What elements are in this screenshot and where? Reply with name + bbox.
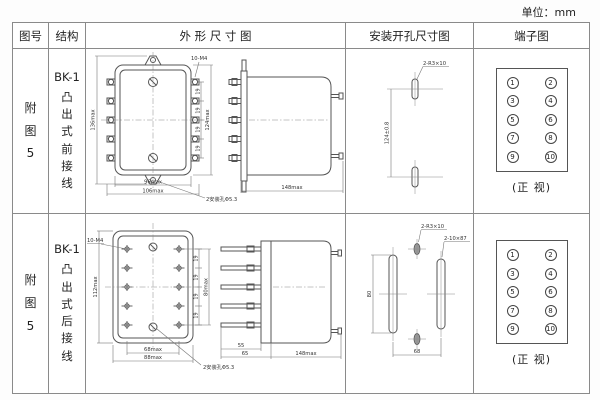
dim-depth: 148max [295, 351, 316, 357]
outline-drawing-front-wiring: 136max 10-M4 19 19 19 19 124max 96max 10… [87, 51, 345, 212]
header-terminal: 端子图 [474, 23, 589, 49]
dim-spacing: 124±0.8 [384, 121, 390, 144]
terminal-cell-row1: 1 2 3 4 5 6 7 8 9 10 (正 视) [474, 49, 589, 214]
terminal-number: 10 [545, 151, 557, 163]
unit-label: 单位：mm [522, 4, 576, 20]
terminal-box: 1 2 3 4 5 6 7 8 9 10 [496, 240, 568, 344]
terminal-cell-row2: 1 2 3 4 5 6 7 8 9 10 (正 视) [474, 214, 589, 393]
terminal-number: 5 [507, 114, 519, 126]
dim-pitch: 19 [193, 274, 199, 280]
fig-char: 5 [27, 142, 35, 165]
outline-cell-row1: 136max 10-M4 19 19 19 19 124max 96max 10… [86, 49, 346, 214]
dim-width-outer: 88max [144, 355, 162, 361]
fig-char: 图 [24, 120, 36, 143]
dim-pitch: 19 [193, 293, 199, 299]
slot-label: 2-R3×10 [421, 224, 444, 230]
structure-char: 前 [61, 141, 73, 158]
structure-char: 式 [61, 123, 73, 140]
terminal-number: 10 [545, 323, 557, 335]
dim-pitch: 19 [195, 126, 201, 132]
terminal-number: 6 [545, 286, 557, 298]
dim-depth: 148max [281, 185, 302, 191]
structure-char: 线 [61, 348, 73, 365]
structure-char: 式 [61, 296, 73, 313]
fig-char: 附 [24, 269, 36, 292]
terminal-caption: (正 视) [512, 351, 551, 367]
structure-char: 凸 [61, 261, 73, 278]
header-outline: 外 形 尺 寸 图 [86, 23, 346, 49]
terminal-number: 4 [545, 268, 557, 280]
terminal-number: 4 [545, 95, 557, 107]
terminal-number: 6 [545, 114, 557, 126]
mount-hole-label: 2安装孔Φ5.3 [203, 363, 234, 371]
structure-char: 接 [61, 158, 73, 175]
header-structure: 结构 [49, 23, 86, 49]
dim-pitch: 19 [195, 145, 201, 151]
outline-drawing-rear-wiring: 10-M4 112max 19 19 19 19 80max 68max 88m… [87, 215, 345, 392]
structure-char: 接 [61, 330, 73, 347]
structure-char: 后 [61, 313, 73, 330]
terminal-number: 1 [507, 77, 519, 89]
terminal-number: 8 [545, 305, 557, 317]
model-label: BK-1 [54, 70, 80, 84]
terminal-number: 3 [507, 268, 519, 280]
dim-right-height: 124max [205, 109, 211, 130]
terminal-caption: (正 视) [512, 179, 551, 195]
fig-char: 图 [24, 292, 36, 315]
dim-height: 80 [367, 291, 373, 298]
dim-pitch: 19 [195, 88, 201, 94]
mounting-cell-row2: 2-R3×10 2-10×87 80 68 [346, 214, 474, 393]
terminal-number: 9 [507, 151, 519, 163]
dim-thread: 10-M4 [191, 56, 208, 62]
terminal-number: 5 [507, 286, 519, 298]
slot-label: 2-R3×10 [423, 61, 446, 67]
model-label: BK-1 [54, 242, 80, 256]
dim-pitch: 19 [193, 255, 199, 261]
dim-offset: 65 [241, 351, 248, 357]
dim-width-outer: 106max [142, 188, 163, 194]
structure-char: 出 [61, 106, 73, 123]
fig-char: 附 [24, 97, 36, 120]
header-fig-no: 图号 [13, 23, 49, 49]
slot2-label: 2-10×87 [444, 236, 467, 242]
terminal-number: 2 [545, 77, 557, 89]
mount-hole-label: 2安装孔Φ5.3 [206, 195, 237, 203]
terminal-number: 2 [545, 249, 557, 261]
structure-char: 出 [61, 279, 73, 296]
dim-width-inner: 96max [144, 179, 162, 185]
terminal-number: 3 [507, 95, 519, 107]
fig-no-cell-row1: 附 图 5 [13, 49, 49, 214]
dim-height: 112max [93, 276, 99, 297]
terminal-number: 8 [545, 132, 557, 144]
fig-char: 5 [27, 315, 35, 338]
structure-char: 凸 [61, 89, 73, 106]
mounting-drawing-front-wiring: 2-R3×10 124±0.8 [347, 51, 473, 212]
dim-pitch: 19 [195, 107, 201, 113]
mounting-drawing-rear-wiring: 2-R3×10 2-10×87 80 68 [347, 215, 473, 392]
terminal-number: 7 [507, 305, 519, 317]
terminal-number: 1 [507, 249, 519, 261]
terminal-number: 9 [507, 323, 519, 335]
structure-cell-row1: BK-1 凸 出 式 前 接 线 [49, 49, 86, 214]
fig-no-cell-row2: 附 图 5 [13, 214, 49, 393]
spec-table: 图号 结构 外 形 尺 寸 图 安装开孔尺寸图 端子图 附 图 5 BK-1 凸… [12, 22, 590, 394]
dim-stud: 55 [237, 343, 244, 349]
terminal-number: 7 [507, 132, 519, 144]
outline-cell-row2: 10-M4 112max 19 19 19 19 80max 68max 88m… [86, 214, 346, 393]
terminal-box: 1 2 3 4 5 6 7 8 9 10 [496, 68, 568, 172]
dim-height: 136max [90, 109, 96, 130]
dim-thread: 10-M4 [87, 238, 104, 244]
dim-pitch: 19 [193, 312, 199, 318]
structure-char: 线 [61, 175, 73, 192]
dim-width: 68 [413, 349, 420, 355]
mounting-cell-row1: 2-R3×10 124±0.8 [346, 49, 474, 214]
structure-cell-row2: BK-1 凸 出 式 后 接 线 [49, 214, 86, 393]
dim-width-inner: 68max [144, 347, 162, 353]
header-mounting: 安装开孔尺寸图 [346, 23, 474, 49]
dim-right-height: 80max [203, 278, 209, 296]
